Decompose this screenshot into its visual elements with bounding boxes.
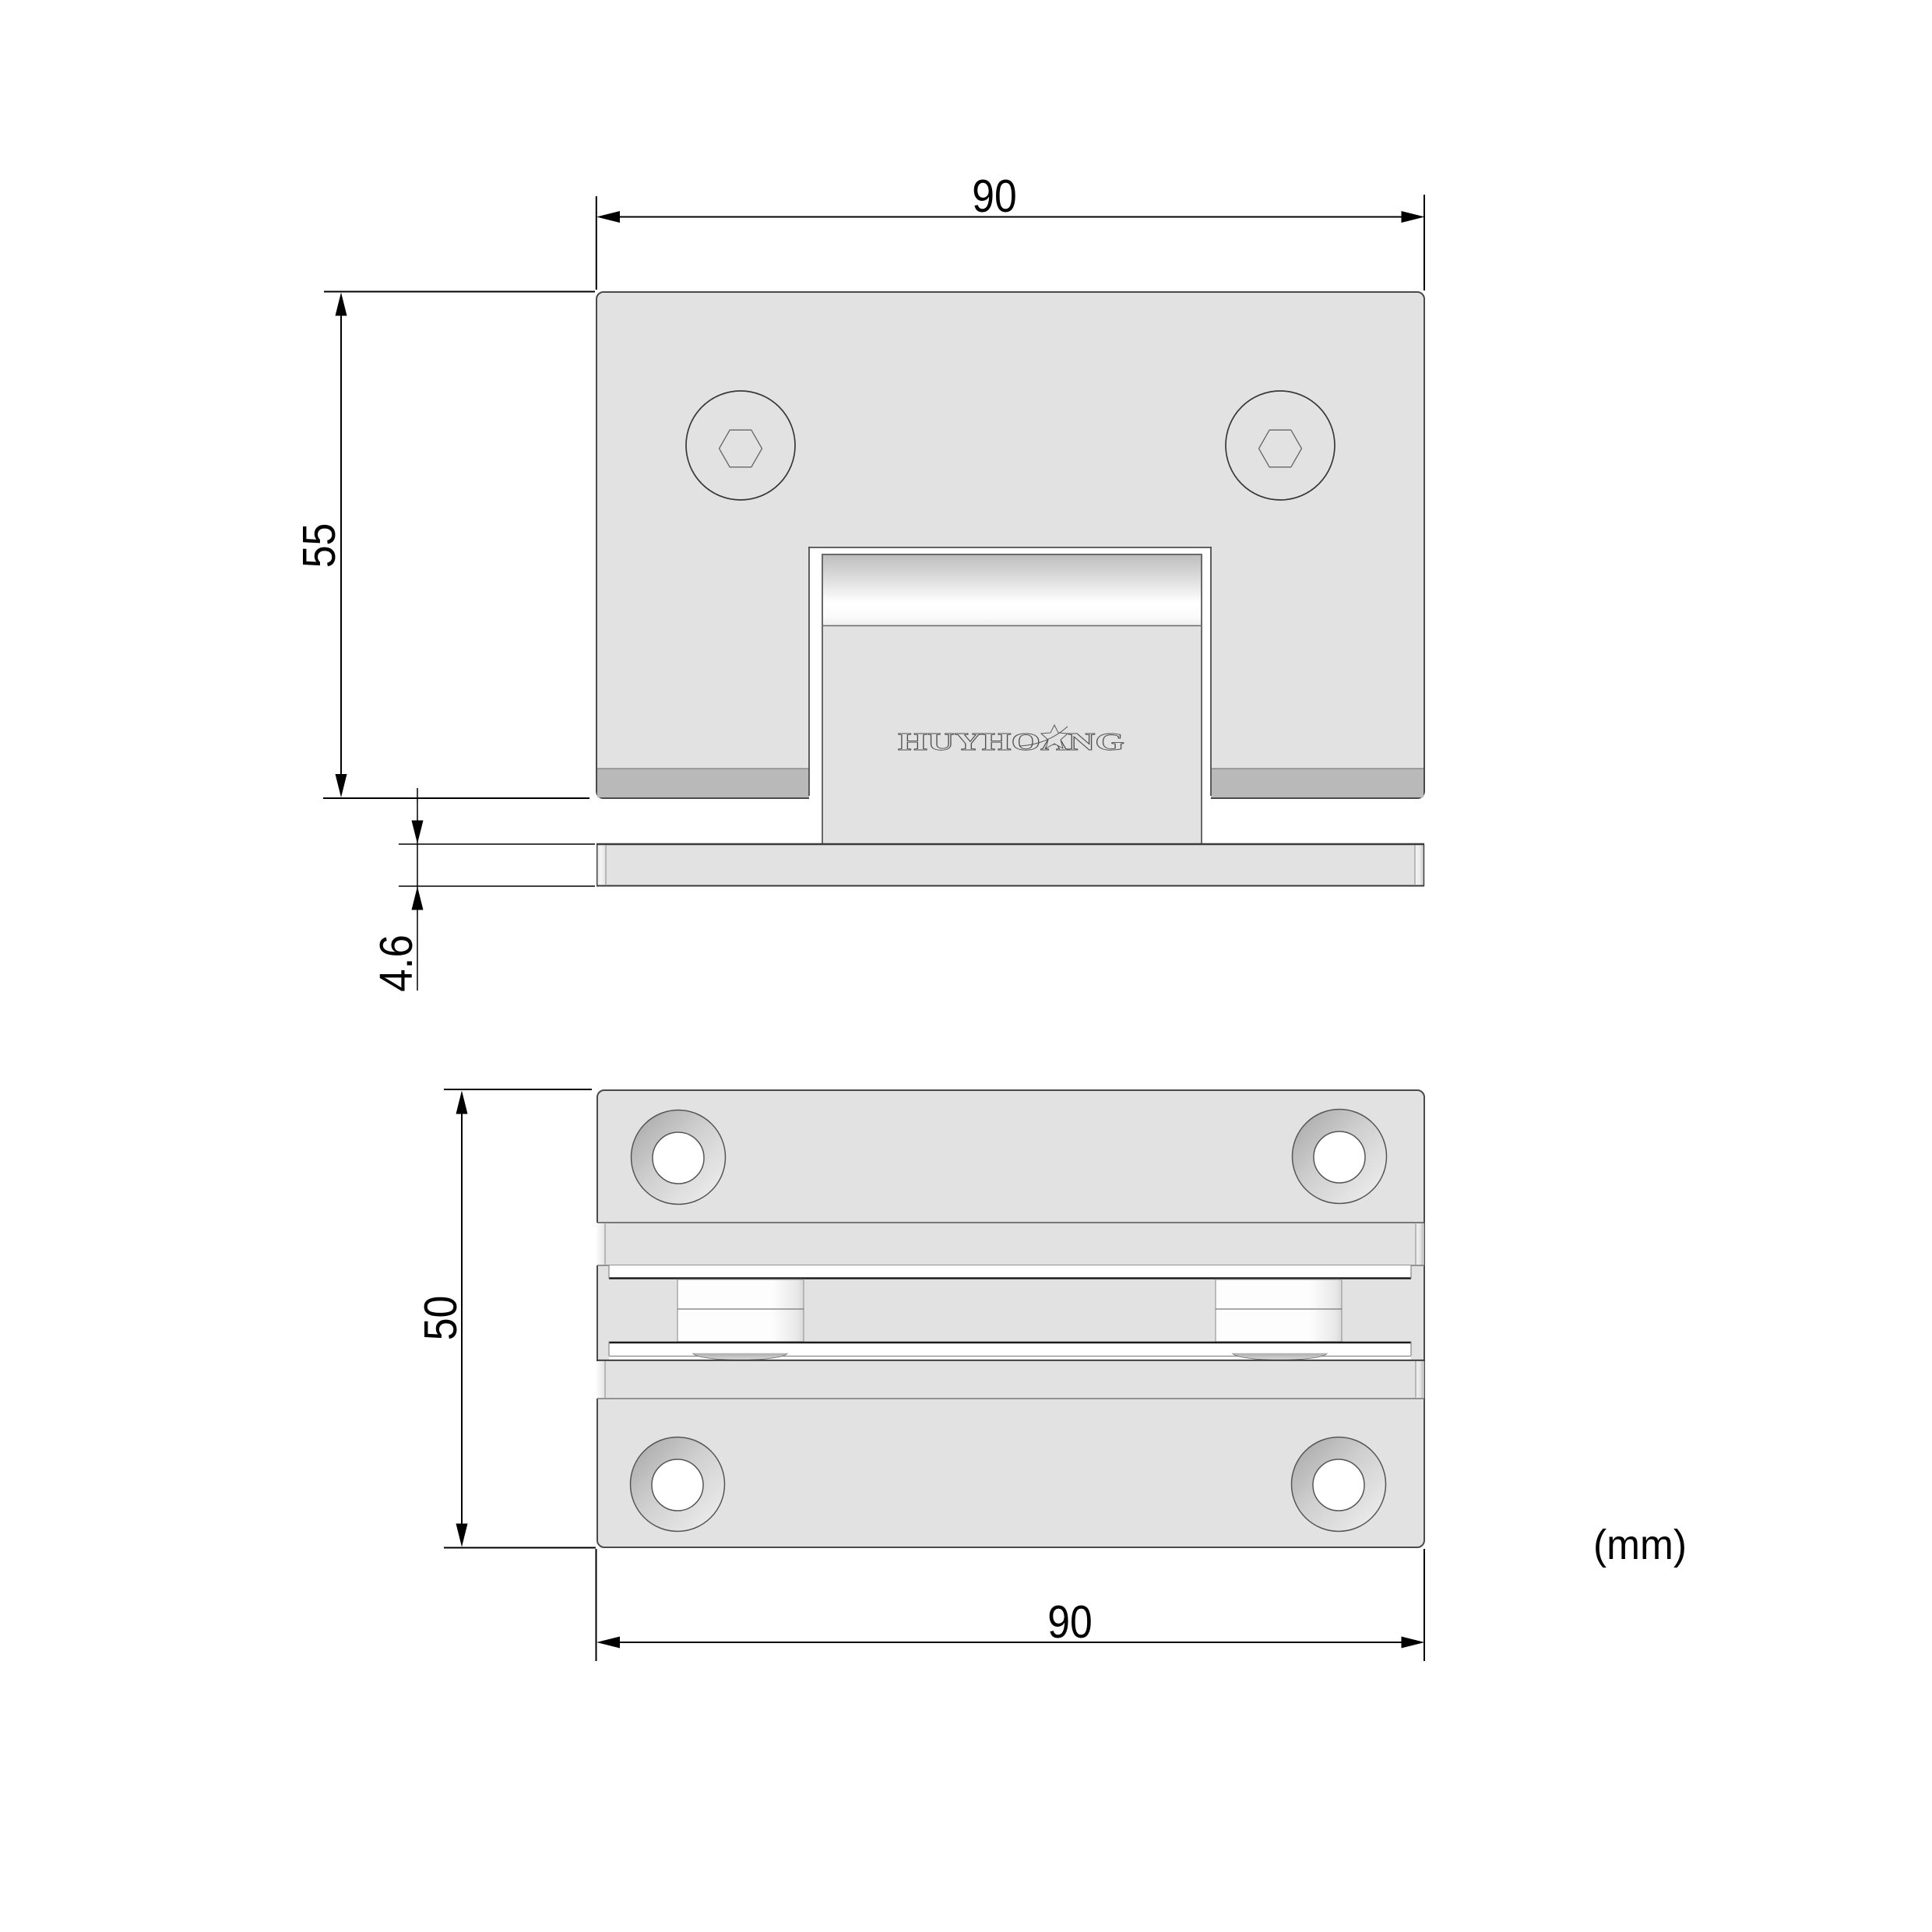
- svg-text:HUYHOANG: HUYHOANG: [898, 727, 1124, 755]
- svg-text:90: 90: [1047, 1596, 1093, 1648]
- svg-text:55: 55: [294, 523, 345, 568]
- svg-text:4.6: 4.6: [371, 934, 422, 992]
- svg-text:(mm): (mm): [1593, 1522, 1687, 1568]
- svg-text:50: 50: [415, 1296, 466, 1341]
- svg-text:90: 90: [972, 171, 1017, 222]
